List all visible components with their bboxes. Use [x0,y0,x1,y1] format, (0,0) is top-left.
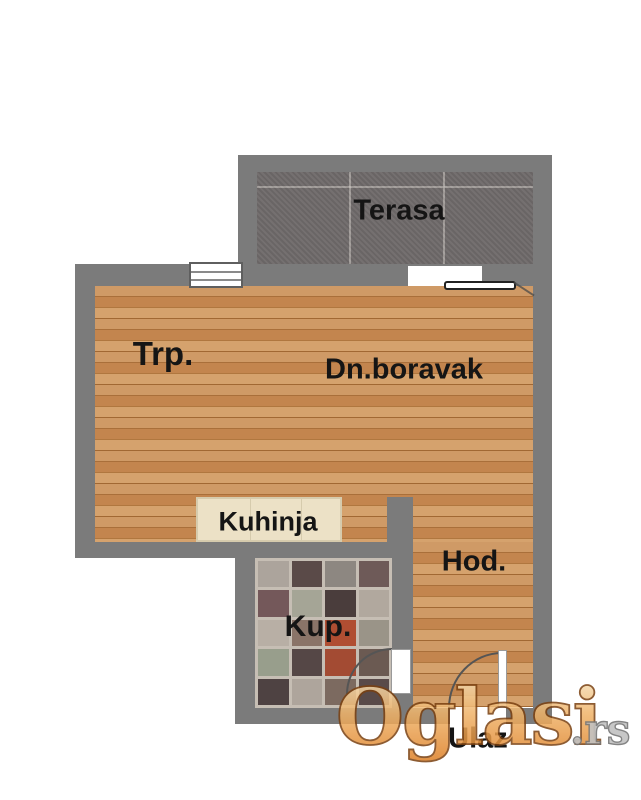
wall-bathroom-left [235,558,255,724]
watermark-tld-text: .rs [570,705,630,754]
wall-living-bottom [75,542,413,558]
room-label-kuhinja: Kuhinja [219,507,318,538]
window-pane-line [191,271,241,273]
floor-plan: Terasa Trp. Dn.boravak Kuhinja Hod. Kup.… [0,0,641,800]
bath-tile [359,561,390,587]
room-label-hodnik: Hod. [442,546,506,579]
bath-tile [359,620,390,646]
window-symbol [189,262,243,288]
wall-terrace-top [238,155,552,172]
room-label-trpezarija: Trp. [133,335,194,373]
wall-right [533,155,552,723]
bath-tile [359,590,390,616]
bath-tile [258,649,289,675]
room-label-dnevni-boravak: Dn.boravak [325,354,483,387]
bath-tile [292,649,323,675]
watermark-brand-text: Oglasi [336,672,601,763]
room-label-kupatilo: Kup. [285,610,352,644]
bath-tile [258,561,289,587]
wall-kitchen-stub [387,497,413,558]
wall-terrace-left [238,155,257,270]
bath-tile [292,561,323,587]
wall-left [75,264,95,558]
room-label-terasa: Terasa [353,195,444,228]
window-pane-line [191,279,241,281]
bath-tile [325,561,356,587]
oglasi-watermark: Oglasi .rs [330,650,640,770]
sliding-door-symbol [444,281,516,290]
bath-tile [292,679,323,705]
bath-tile [258,679,289,705]
